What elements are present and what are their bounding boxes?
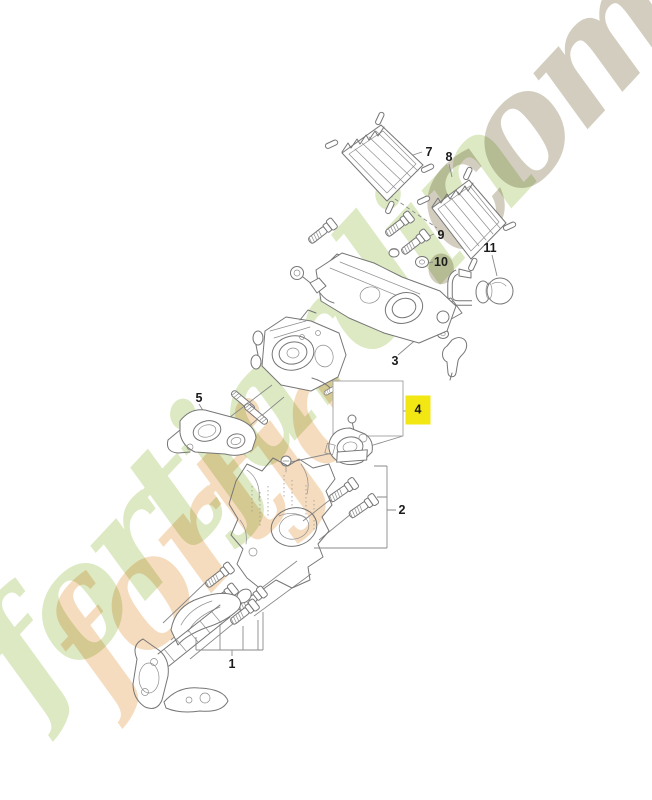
exploded-parts-drawing: fortja fortjardin .com xyxy=(0,0,652,800)
parts-diagram-page: fortja fortjardin .com xyxy=(0,0,652,800)
callout-5-intake-flange[interactable]: 5 xyxy=(196,392,203,405)
callout-3-carburetor-assembly[interactable]: 3 xyxy=(392,355,399,368)
callout-1-cylinder-muffler-assembly[interactable]: 1 xyxy=(229,658,236,671)
callout-10-grommet[interactable]: 10 xyxy=(434,256,448,269)
callout-4-selected-part[interactable]: 4 xyxy=(406,396,431,425)
callout-11-primer-bulb[interactable]: 11 xyxy=(483,242,496,255)
callout-8-air-filter-right[interactable]: 8 xyxy=(446,151,453,164)
part4-selection-rectangle[interactable] xyxy=(333,381,403,436)
part-grommet xyxy=(416,257,429,268)
callout-9-screw-set[interactable]: 9 xyxy=(438,229,445,242)
callout-2-cylinder-shroud[interactable]: 2 xyxy=(399,504,406,517)
callout-7-air-filter-left[interactable]: 7 xyxy=(426,146,433,159)
